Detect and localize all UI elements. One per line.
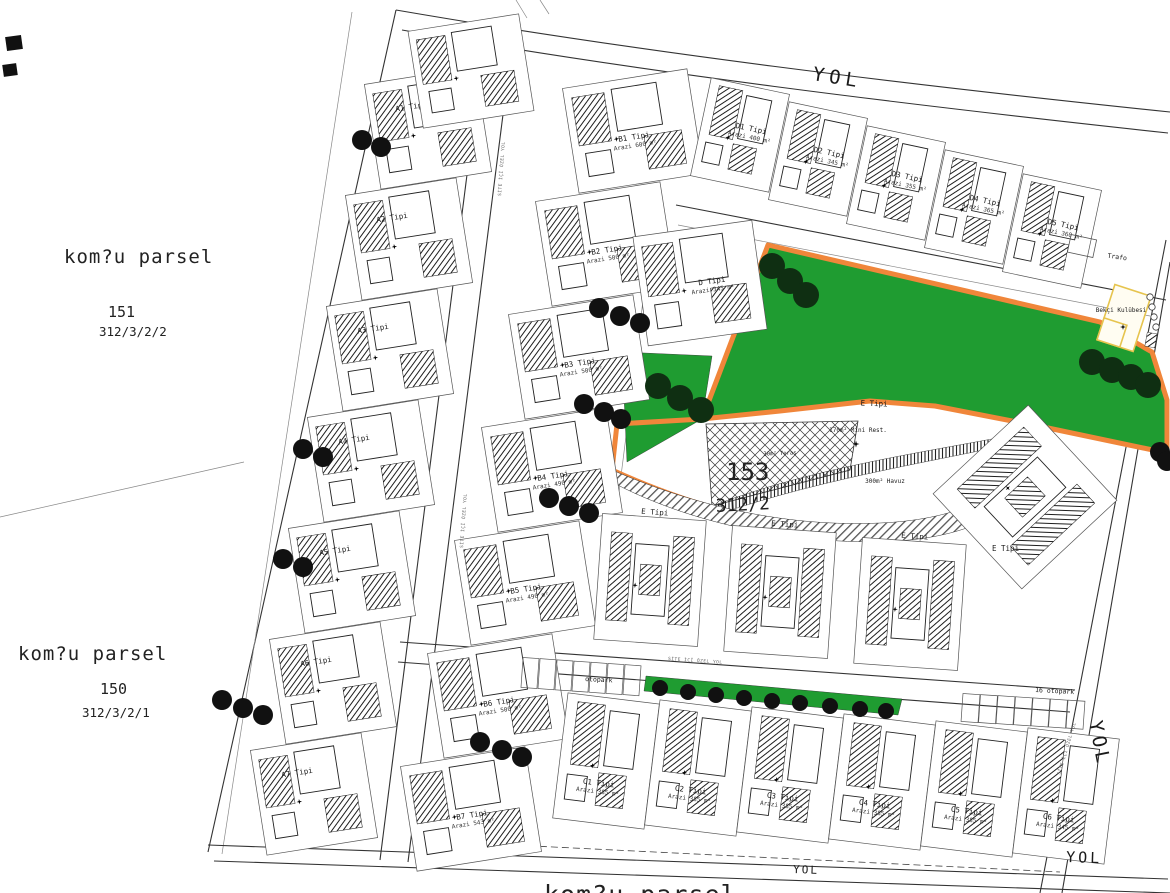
tree [273, 549, 293, 569]
neighbor-151-title: kom?u parsel [64, 246, 213, 268]
villa-a2: A2 Tipi [345, 178, 472, 300]
park-tree [645, 373, 671, 399]
park-tree [688, 397, 714, 423]
villa-e3-label: E Tipi [901, 531, 929, 542]
park-tree [793, 282, 819, 308]
guard-house-label: Bekçi Kulübesi [1096, 307, 1147, 314]
villa-b6: B6 TipiArazi 500 m² [427, 634, 568, 758]
villa-c3: C3 TipiArazi 385 m² [737, 707, 844, 843]
villa-e4-label: E Tipi [992, 544, 1019, 553]
social-area-type-label: E Tipi [860, 399, 887, 409]
guard-house: Bekçi Kulübesi [1096, 285, 1159, 352]
road-label-top: YOL [811, 63, 863, 92]
neighbor-parcel-151: kom?u parsel 151 312/3/2/2 [64, 246, 213, 339]
neighbor-150-lot: 312/3/2/1 [82, 705, 150, 720]
neighbor-bottom-title: kom?u parsel [544, 880, 737, 893]
villa-a7: A7 Tipi [250, 733, 377, 855]
villa-c1: C1 TipiArazi 385 m² [553, 693, 660, 829]
tree [492, 740, 512, 760]
tree [470, 732, 490, 752]
parking-stall [979, 695, 998, 724]
pool-label: 300m² Havuz [865, 478, 905, 485]
trafo-label: Trafo [1107, 252, 1128, 263]
site-plan-drawing: 153 312/2 E Tipi 170m² Mini Rest. 300m² … [0, 0, 1170, 893]
site-plan-canvas: 153 312/2 E Tipi 170m² Mini Rest. 300m² … [0, 0, 1170, 893]
tree [371, 137, 391, 157]
parking-right-label: 16 otopark [1035, 686, 1075, 696]
parking-stall [1031, 698, 1050, 727]
internal-road-label: SİTE İÇİ ÖZEL YOL [668, 655, 723, 666]
neighbor-151-number: 151 [108, 303, 135, 321]
site-circle [1147, 294, 1153, 300]
strip-tree [852, 701, 868, 717]
villa-e3: E Tipi [854, 528, 967, 670]
parking-left-label: otopark [585, 675, 613, 684]
tree [589, 298, 609, 318]
parcel-153-number: 153 [726, 458, 769, 486]
tree [579, 503, 599, 523]
tree [512, 747, 532, 767]
villa-c5: C5 TipiArazi 385 m² [921, 721, 1028, 857]
park-tree [1135, 372, 1161, 398]
villa-b1: B1 TipiArazi 600 m² [562, 69, 703, 193]
tree [610, 306, 630, 326]
villa-d-center: D TipiArazi 345 m² [633, 220, 767, 346]
tree [539, 488, 559, 508]
villa-e1: E Tipi [594, 504, 707, 646]
strip-tree [708, 687, 724, 703]
tree [611, 409, 631, 429]
parking-stall [961, 693, 980, 722]
parking-stall [1014, 697, 1033, 726]
guard-hatch-block [1145, 332, 1157, 348]
villa-a3: A3 Tipi [326, 289, 453, 411]
villa-c2: C2 TipiArazi 385 m² [645, 700, 752, 836]
parcel-153-lot: 312/2 [715, 493, 770, 517]
strip-tree [736, 690, 752, 706]
villa-top [408, 14, 534, 128]
neighbor-150-number: 150 [100, 680, 127, 698]
tree [630, 313, 650, 333]
tree [293, 557, 313, 577]
tree [212, 690, 232, 710]
tree [253, 705, 273, 725]
strip-tree [822, 698, 838, 714]
villa-c4: C4 TipiArazi 385 m² [829, 714, 936, 850]
villa-b5: B5 TipiArazi 490 m² [454, 521, 595, 645]
villa-b4: B4 TipiArazi 490 m² [481, 408, 622, 532]
neighbor-150-title: kom?u parsel [18, 643, 167, 665]
terrace-label: 30m² Teras [763, 449, 796, 457]
site-circle [1149, 304, 1155, 310]
site-circle [1153, 324, 1159, 330]
villa-e2: E Tipi [724, 516, 837, 658]
plan-mark [5, 35, 23, 51]
tree [293, 439, 313, 459]
road-label-bottom-2: YOL [793, 863, 819, 877]
internal-road-label: SİTE İÇİ ÖZEL YOL [496, 141, 507, 196]
neighbor-151-lot: 312/3/2/2 [99, 324, 167, 339]
strip-tree [680, 684, 696, 700]
plan-mark [2, 63, 18, 77]
tree [313, 447, 333, 467]
tree [352, 130, 372, 150]
road-label-bottom: YOL [1066, 848, 1103, 867]
parking-stall [1049, 699, 1068, 728]
parking-stall [996, 696, 1015, 725]
neighbor-parcel-150: kom?u parsel 150 312/3/2/1 [18, 643, 167, 720]
villa-a6: A6 Tipi [269, 622, 396, 744]
tree [233, 698, 253, 718]
strip-tree [792, 695, 808, 711]
corner-marks [2, 35, 23, 77]
villa-e2-label: E Tipi [771, 519, 799, 530]
villa-e1-label: E Tipi [641, 507, 669, 518]
strip-tree [652, 680, 668, 696]
strip-tree [878, 703, 894, 719]
strip-tree [764, 693, 780, 709]
tree [574, 394, 594, 414]
site-circle [1151, 314, 1157, 320]
mini-restaurant-label: 170m² Mini Rest. [829, 427, 887, 434]
tree [559, 496, 579, 516]
